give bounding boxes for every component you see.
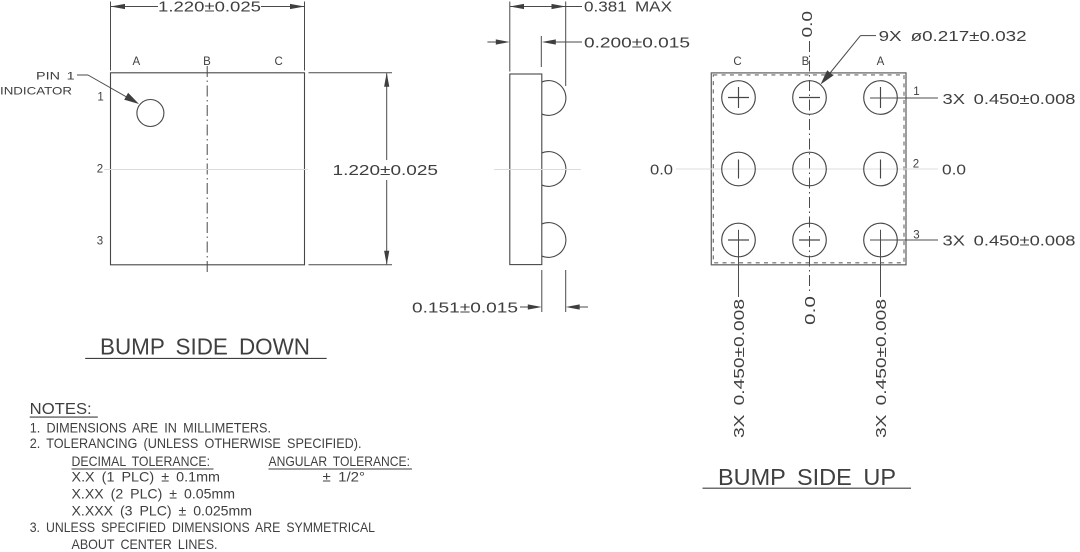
svg-text:0.0: 0.0 bbox=[942, 162, 966, 179]
svg-text:B: B bbox=[203, 56, 211, 68]
svg-text:ANGULAR TOLERANCE:: ANGULAR TOLERANCE: bbox=[269, 453, 411, 469]
svg-text:2. TOLERANCING (UNLESS OTHERWI: 2. TOLERANCING (UNLESS OTHERWISE SPECIFI… bbox=[30, 435, 362, 451]
svg-text:1: 1 bbox=[97, 91, 103, 103]
svg-text:0.0: 0.0 bbox=[650, 162, 673, 179]
svg-text:0.0: 0.0 bbox=[802, 296, 819, 325]
svg-text:A: A bbox=[132, 56, 140, 68]
svg-text:INDICATOR: INDICATOR bbox=[0, 86, 72, 98]
svg-text:1.220±0.025: 1.220±0.025 bbox=[158, 0, 261, 16]
svg-text:ABOUT CENTER LINES.: ABOUT CENTER LINES. bbox=[72, 536, 218, 552]
svg-text:3. UNLESS SPECIFIED DIMENSIONS: 3. UNLESS SPECIFIED DIMENSIONS ARE SYMME… bbox=[30, 519, 375, 535]
svg-text:1. DIMENSIONS ARE IN MILLIMETE: 1. DIMENSIONS ARE IN MILLIMETERS. bbox=[30, 419, 271, 435]
svg-text:BUMP SIDE DOWN: BUMP SIDE DOWN bbox=[100, 334, 310, 360]
svg-text:C: C bbox=[274, 56, 282, 68]
svg-text:3X 0.450±0.008: 3X 0.450±0.008 bbox=[943, 91, 1076, 108]
svg-text:NOTES:: NOTES: bbox=[30, 401, 92, 418]
svg-text:PIN 1: PIN 1 bbox=[36, 70, 75, 82]
svg-text:X.X (1 PLC) ± 0.1mm: X.X (1 PLC) ± 0.1mm bbox=[72, 469, 221, 485]
svg-text:0.381 MAX: 0.381 MAX bbox=[584, 0, 672, 16]
svg-text:± 1/2°: ± 1/2° bbox=[323, 469, 366, 485]
svg-text:3X 0.450±0.008: 3X 0.450±0.008 bbox=[731, 299, 748, 438]
svg-text:B: B bbox=[802, 56, 810, 68]
svg-text:C: C bbox=[733, 56, 741, 68]
svg-text:A: A bbox=[877, 56, 885, 68]
svg-text:0.151±0.015: 0.151±0.015 bbox=[412, 299, 518, 316]
svg-text:X.XXX (3 PLC) ± 0.025mm: X.XXX (3 PLC) ± 0.025mm bbox=[72, 503, 253, 519]
svg-text:3X 0.450±0.008: 3X 0.450±0.008 bbox=[943, 233, 1076, 250]
svg-text:3: 3 bbox=[97, 235, 103, 247]
svg-text:BUMP SIDE UP: BUMP SIDE UP bbox=[718, 464, 896, 490]
svg-text:DECIMAL TOLERANCE:: DECIMAL TOLERANCE: bbox=[72, 453, 211, 469]
svg-text:1.220±0.025: 1.220±0.025 bbox=[333, 162, 439, 179]
svg-text:1: 1 bbox=[913, 86, 919, 98]
svg-text:0.0: 0.0 bbox=[799, 11, 816, 38]
svg-text:3X 0.450±0.008: 3X 0.450±0.008 bbox=[873, 299, 890, 438]
svg-text:X.XX (2 PLC) ± 0.05mm: X.XX (2 PLC) ± 0.05mm bbox=[72, 486, 236, 502]
svg-text:0.200±0.015: 0.200±0.015 bbox=[584, 34, 690, 51]
svg-text:2: 2 bbox=[913, 159, 919, 171]
svg-text:9X ø0.217±0.032: 9X ø0.217±0.032 bbox=[879, 28, 1027, 45]
svg-text:2: 2 bbox=[97, 163, 103, 175]
